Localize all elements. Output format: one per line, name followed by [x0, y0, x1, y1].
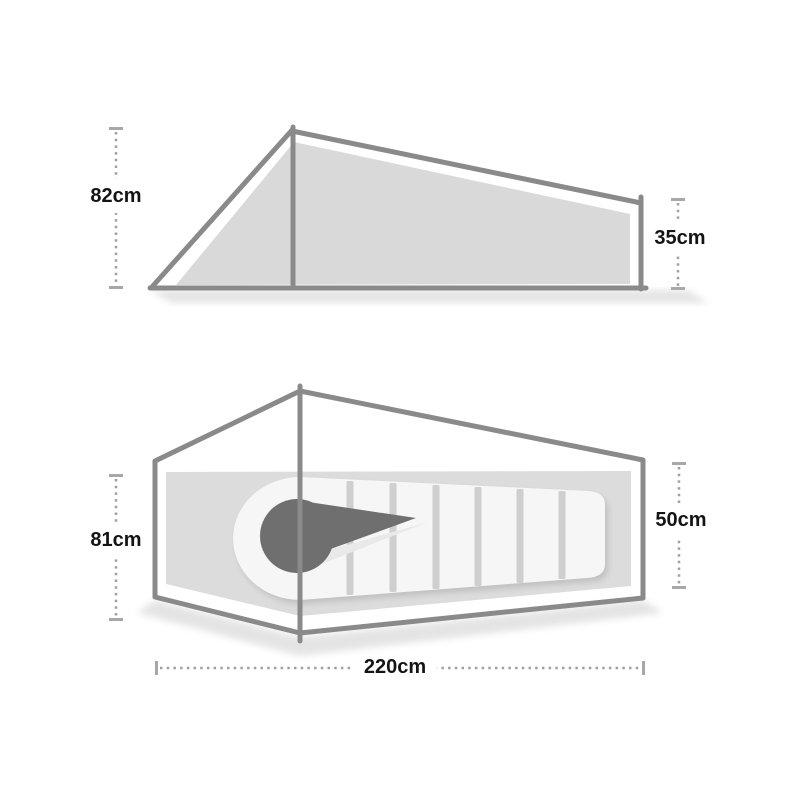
dimension-82cm-cap-bottom [109, 286, 123, 289]
dimension-81cm-cap-top [109, 474, 123, 477]
dimension-label-top-right-width: 50cm [652, 503, 709, 537]
side-view-fabric [176, 142, 630, 285]
top-view [137, 386, 663, 656]
baffle-line [517, 489, 524, 583]
dimension-50cm-cap-bottom [672, 586, 686, 589]
baffle-line [390, 483, 397, 592]
dimension-35cm-cap-top [671, 198, 685, 201]
baffle-line [559, 491, 566, 579]
dimension-220cm-cap-right [642, 661, 645, 675]
dimension-50cm-cap-top [672, 462, 686, 465]
dimension-label-top-left-width: 81cm [87, 523, 144, 557]
dimension-220cm-cap-left [155, 661, 158, 675]
diagram-svg [0, 0, 800, 800]
side-view [150, 127, 708, 303]
dimension-label-side-right-height: 35cm [651, 221, 708, 255]
dimension-81cm-cap-bottom [109, 618, 123, 621]
baffle-line [475, 487, 482, 586]
dimension-82cm-cap-top [109, 127, 123, 130]
baffle-line [433, 485, 440, 589]
top-view-ground-shadow [137, 600, 663, 656]
dimension-label-length: 220cm [353, 655, 437, 679]
side-view-ground-shadow [150, 290, 708, 303]
dimension-label-side-left-height: 82cm [87, 179, 144, 213]
dimension-35cm-cap-bottom [671, 287, 685, 290]
tent-dimensions-diagram: 82cm 35cm 81cm 50cm 220cm [0, 0, 800, 800]
